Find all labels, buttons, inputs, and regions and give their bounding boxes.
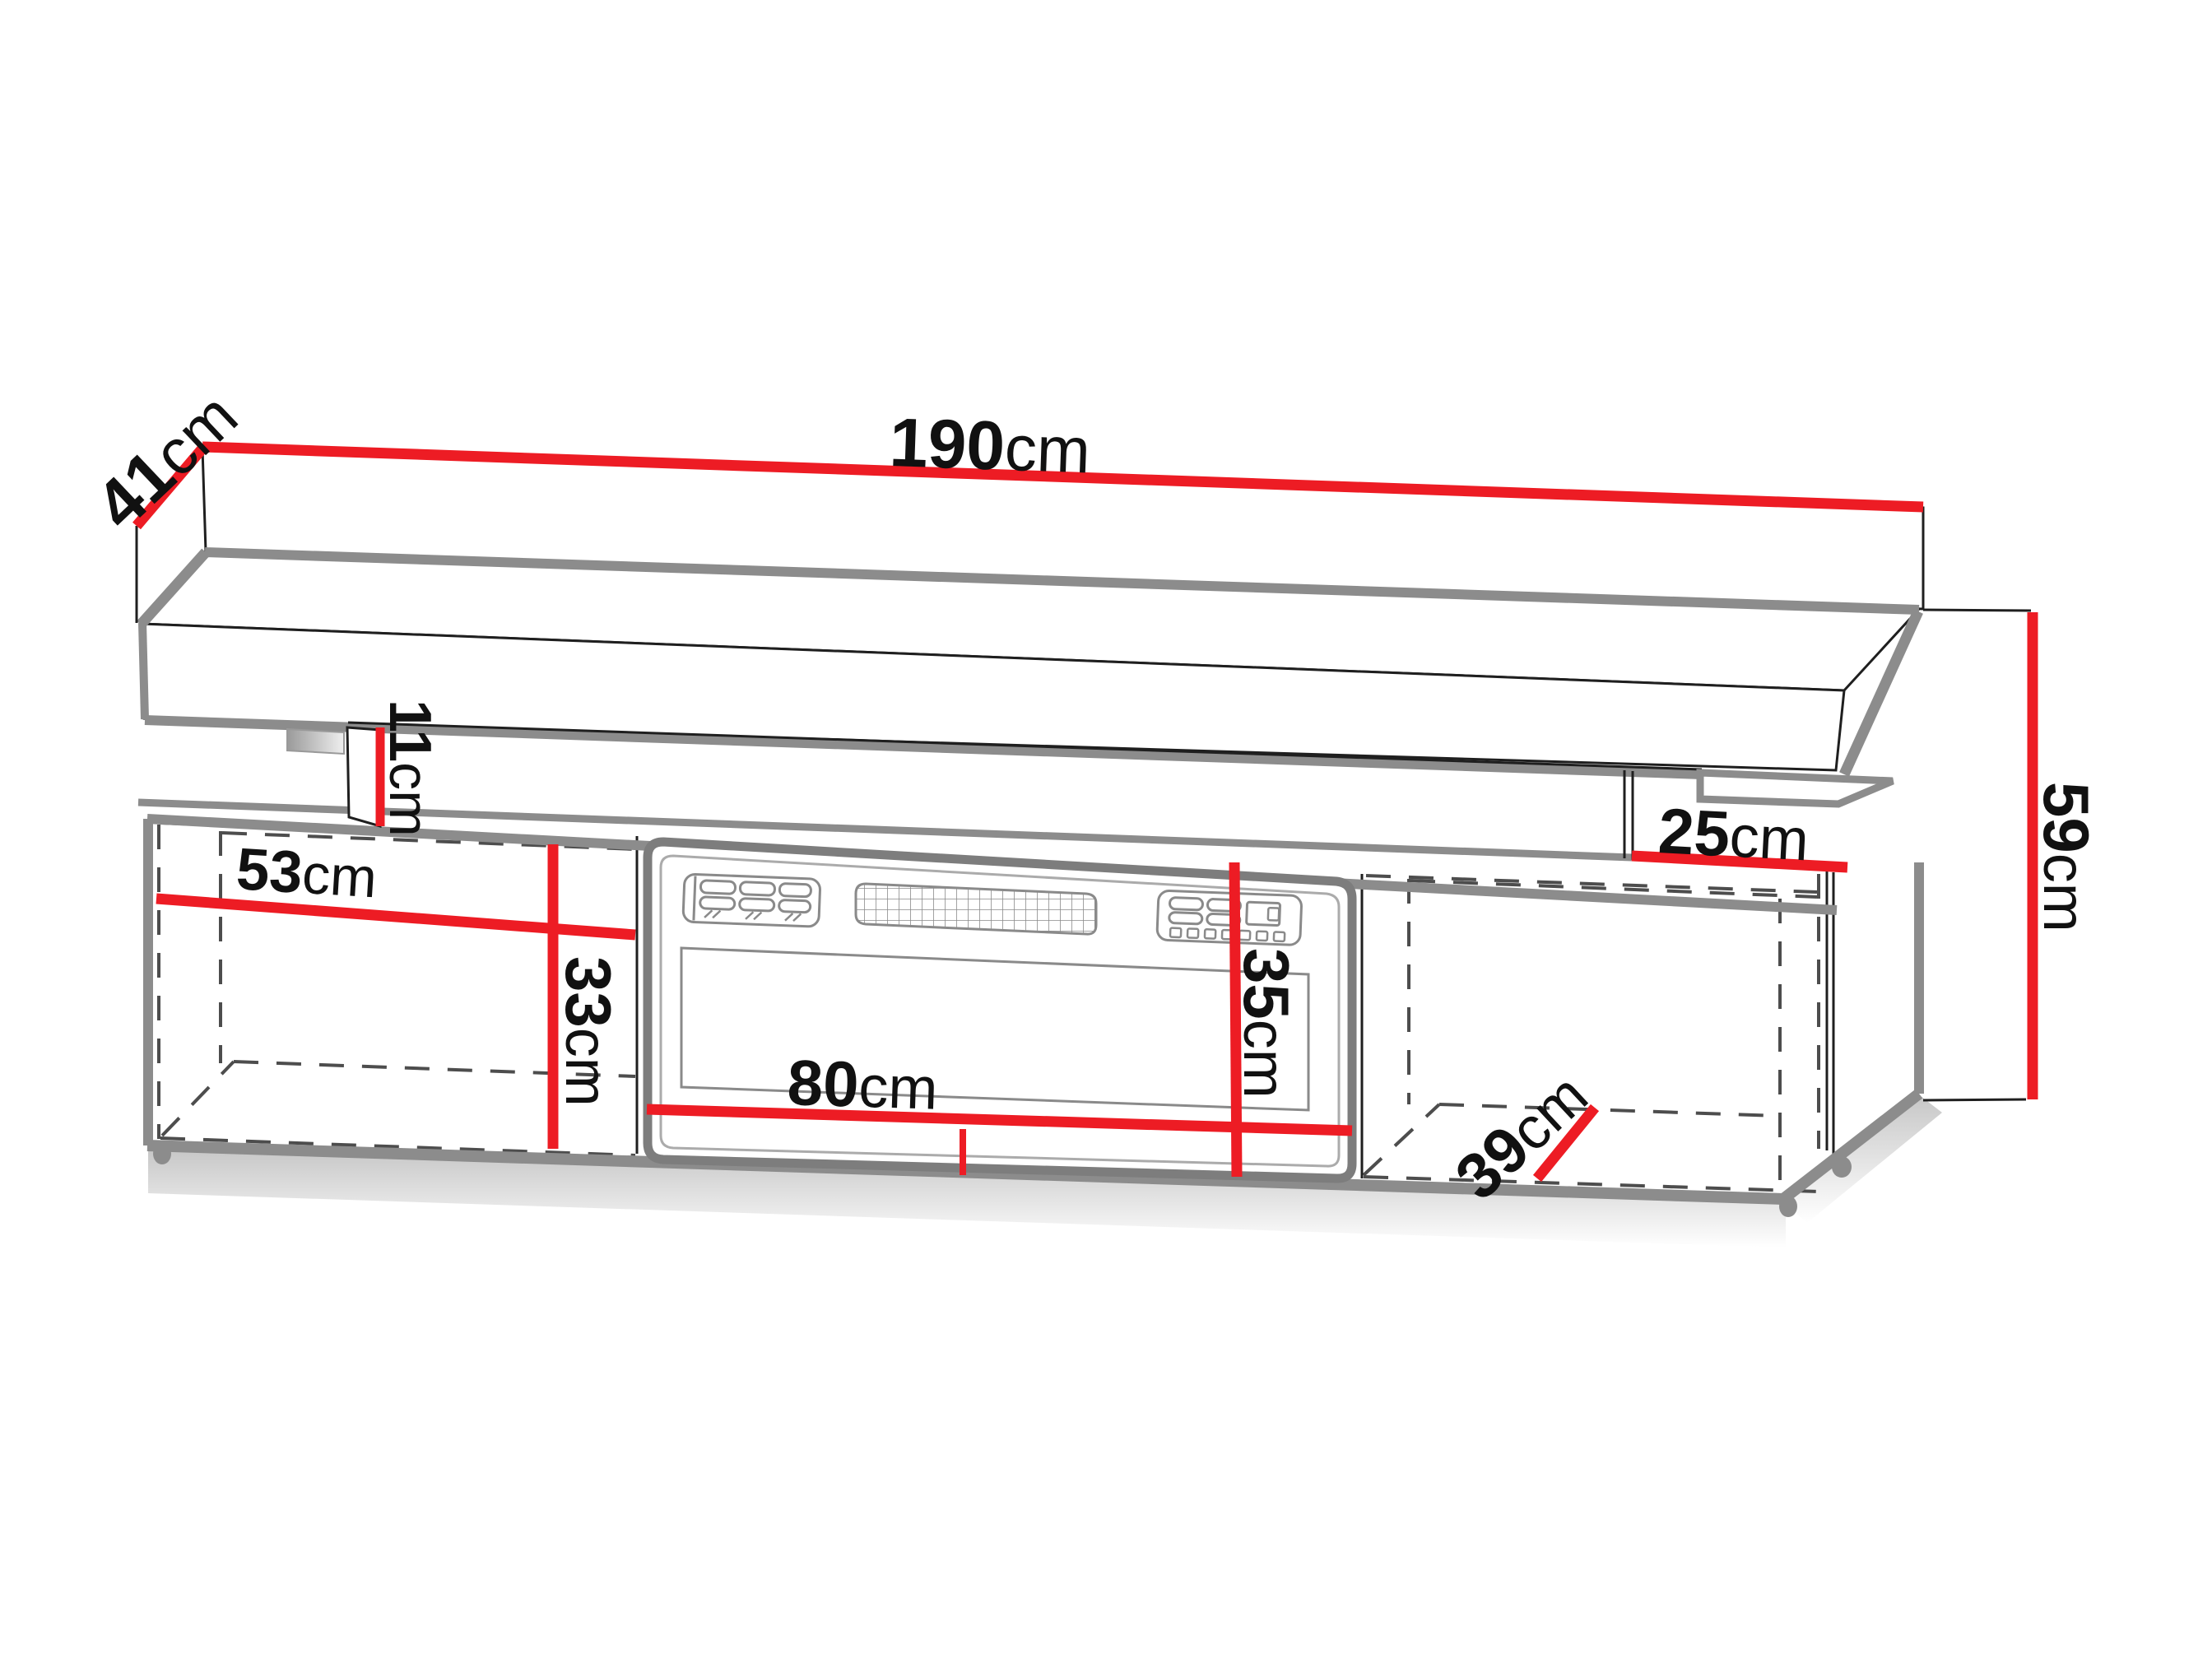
label-80cm: 80cm bbox=[786, 1046, 938, 1123]
fireplace-mesh-grille bbox=[856, 884, 1096, 934]
label-25cm: 25cm bbox=[1657, 794, 1810, 874]
led-strip bbox=[287, 729, 344, 754]
dimension-diagram: 190cm 41cm 11cm 53cm 33cm 80cm 35cm 25cm… bbox=[0, 0, 2212, 1659]
fireplace-left-vent bbox=[683, 874, 820, 927]
shelf-support-right bbox=[1624, 770, 1633, 860]
label-35cm: 35cm bbox=[1230, 948, 1303, 1099]
label-11cm: 11cm bbox=[377, 699, 443, 837]
label-53cm: 53cm bbox=[235, 836, 379, 910]
shelf-support-tab-left bbox=[347, 727, 380, 826]
label-190cm: 190cm bbox=[888, 403, 1091, 487]
fireplace-window bbox=[681, 948, 1308, 1110]
label-33cm: 33cm bbox=[552, 956, 625, 1107]
label-59cm: 59cm bbox=[2030, 782, 2103, 932]
